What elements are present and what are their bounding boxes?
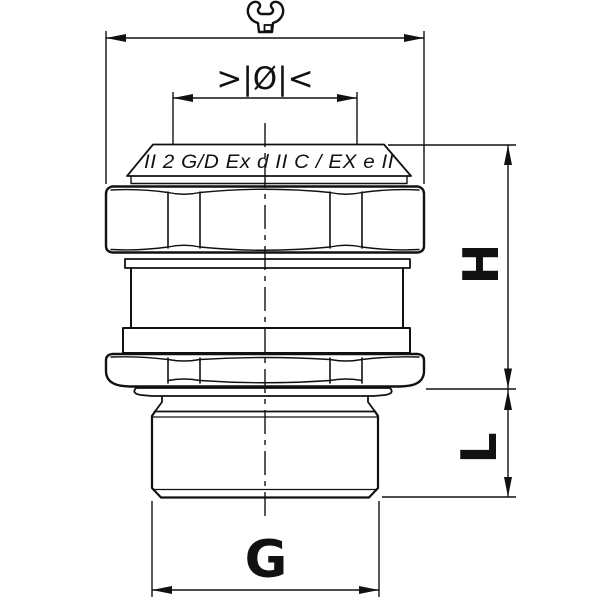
dim-thread-size-label: G: [245, 530, 288, 590]
dim-height-label: H: [453, 243, 510, 284]
cap-band: [131, 176, 407, 184]
dimension-thread-length-L: L: [382, 390, 516, 497]
diameter-symbol: >|Ø|<: [216, 61, 313, 97]
atex-marking-text: II 2 G/D Ex d II C / EX e II: [144, 151, 394, 173]
upper-washer: [125, 259, 410, 268]
technical-drawing-page: >|Ø|< H L G II 2 G/D Ex d II C / EX e II: [0, 0, 600, 600]
cable-gland-drawing: >|Ø|< H L G II 2 G/D Ex d II C / EX e II: [0, 0, 600, 600]
wrench-icon: [248, 2, 283, 32]
mid-cylinder: [131, 268, 403, 328]
lower-washer: [134, 388, 391, 396]
mid-flange: [123, 328, 410, 353]
dim-thread-length-label: L: [451, 432, 508, 463]
